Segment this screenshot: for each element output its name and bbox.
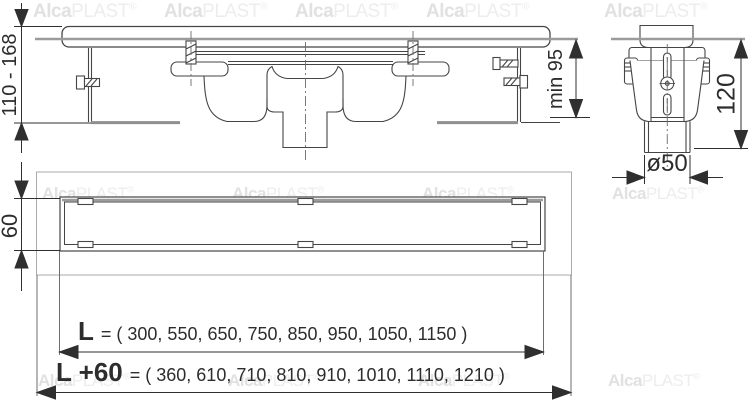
length-L-values: = ( 300, 550, 650, 750, 850, 950, 1050, … (101, 324, 467, 345)
mounting-leg-left (77, 48, 181, 123)
length-L60-values: = ( 360, 610, 710, 810, 910, 1010, 1110,… (130, 365, 505, 386)
plan-view (37, 172, 572, 275)
length-row-L60: L +60 = ( 360, 610, 710, 810, 910, 1010,… (56, 357, 505, 388)
trap-height-label: 120 (715, 73, 740, 115)
length-L60-symbol: L +60 (56, 357, 123, 388)
length-L-symbol: L (78, 316, 94, 347)
outlet-diameter-label: ø50 (646, 152, 687, 176)
channel-width-label: 60 (0, 214, 21, 238)
side-view (35, 27, 578, 161)
technical-drawing-page: { "watermark": { "alca": "Alca", "plast"… (0, 0, 749, 403)
installation-height-label: 110 - 168 (0, 33, 20, 116)
length-row-L: L = ( 300, 550, 650, 750, 850, 950, 1050… (78, 316, 467, 347)
min-depth-label: min 95 (546, 49, 566, 109)
mounting-leg-right (437, 48, 560, 123)
